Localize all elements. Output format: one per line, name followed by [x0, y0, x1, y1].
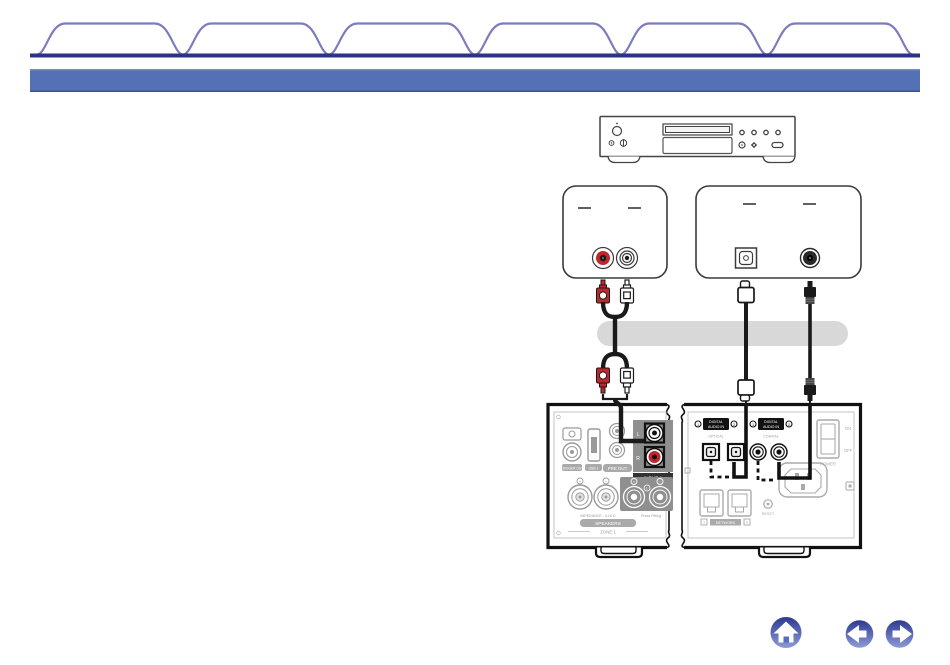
- rca-plug-red-bottom: [597, 368, 610, 393]
- tab-5[interactable]: [621, 24, 767, 55]
- zone-label: ZONE 1: [600, 530, 616, 535]
- optical-in-2-jack: [728, 444, 744, 460]
- svg-text:2: 2: [733, 423, 735, 427]
- tab-2[interactable]: [183, 24, 329, 55]
- rca-out-red-jack: [593, 248, 614, 269]
- svg-text:−: −: [605, 479, 608, 484]
- cd-player-foot-left: [608, 157, 640, 163]
- rca-plug-white-top: [621, 280, 634, 303]
- fitting-label: Press Fitting: [641, 514, 661, 518]
- rca-plug-white-bottom: [621, 368, 634, 393]
- svg-text:1: 1: [752, 423, 754, 427]
- cd-player-front: [600, 117, 795, 163]
- tab-bar: [30, 24, 920, 56]
- svg-text:+: +: [579, 479, 582, 484]
- amp-foot-left: [596, 548, 642, 558]
- cd-rear-digital-panel: [696, 186, 861, 278]
- svg-text:DIGITAL: DIGITAL: [764, 420, 778, 424]
- coaxial-plug-top: [804, 281, 816, 304]
- forward-button[interactable]: [886, 620, 914, 648]
- input-l-mark: L: [637, 432, 640, 438]
- cable-group-bracket: [603, 394, 627, 399]
- coaxial-sub-label: COAXIAL: [763, 435, 779, 439]
- home-button[interactable]: [771, 617, 802, 648]
- svg-text:AUDIO IN: AUDIO IN: [708, 425, 724, 429]
- impedance-label: IMPEDANCE : 4-16 Ω: [580, 514, 616, 518]
- svg-text:−: −: [659, 479, 662, 484]
- pre-out-label: PRE OUT: [608, 466, 628, 471]
- svg-text:1: 1: [703, 521, 705, 525]
- usb-label: USB 1: [589, 466, 599, 470]
- optical-sub-label: OPTICAL: [708, 435, 723, 439]
- section-title-bar: [30, 69, 920, 92]
- input-l-jack: [646, 425, 663, 442]
- tab-1[interactable]: [37, 24, 183, 55]
- optical-out-jack: [736, 248, 757, 268]
- tab-3[interactable]: [329, 24, 475, 55]
- coaxial-plug-bottom: [804, 378, 816, 401]
- trigger-label: TRIGGER OUT: [561, 466, 583, 470]
- rca-plug-red-top: [597, 280, 610, 303]
- power-on-label: ON: [845, 426, 851, 431]
- tab-4[interactable]: [475, 24, 621, 55]
- page-canvas: TRIGGER OUT USB 1 PRE OUT L R: [0, 0, 950, 665]
- svg-text:L: L: [646, 487, 648, 491]
- svg-text:2: 2: [746, 521, 748, 525]
- panel-break-mark: [681, 405, 684, 548]
- amp-rear-panel-left: TRIGGER OUT USB 1 PRE OUT L R: [548, 405, 673, 558]
- power-off-label: OFF: [844, 448, 853, 453]
- optical-plug-top: [738, 281, 754, 303]
- manual-page: TRIGGER OUT USB 1 PRE OUT L R: [0, 0, 950, 665]
- speakers-label: SPEAKERS: [595, 521, 621, 527]
- svg-text:2: 2: [788, 423, 790, 427]
- optical-plug-bottom: [738, 380, 754, 401]
- reset-label: RESET: [762, 512, 775, 516]
- optical-in-1-jack: [703, 444, 719, 460]
- network-label: NETWORK: [716, 521, 736, 525]
- coaxial-out-jack: [801, 249, 820, 268]
- input-r-mark: R: [636, 456, 640, 462]
- coaxial-in-1-jack: [750, 444, 766, 460]
- svg-text:1: 1: [697, 423, 699, 427]
- amp-foot-right: [759, 548, 810, 558]
- svg-text:AUDIO IN: AUDIO IN: [763, 425, 779, 429]
- coaxial-in-2-jack: [771, 444, 787, 460]
- cd-rear-analog-panel: [563, 186, 667, 278]
- rca-out-white-jack: [617, 248, 638, 269]
- tab-6[interactable]: [767, 24, 913, 55]
- input-r-jack: [646, 449, 663, 466]
- svg-text:+: +: [633, 479, 636, 484]
- back-button[interactable]: [846, 620, 874, 648]
- cd-player-foot-right: [763, 157, 795, 163]
- page-nav: [771, 617, 914, 648]
- svg-text:DIGITAL: DIGITAL: [709, 420, 723, 424]
